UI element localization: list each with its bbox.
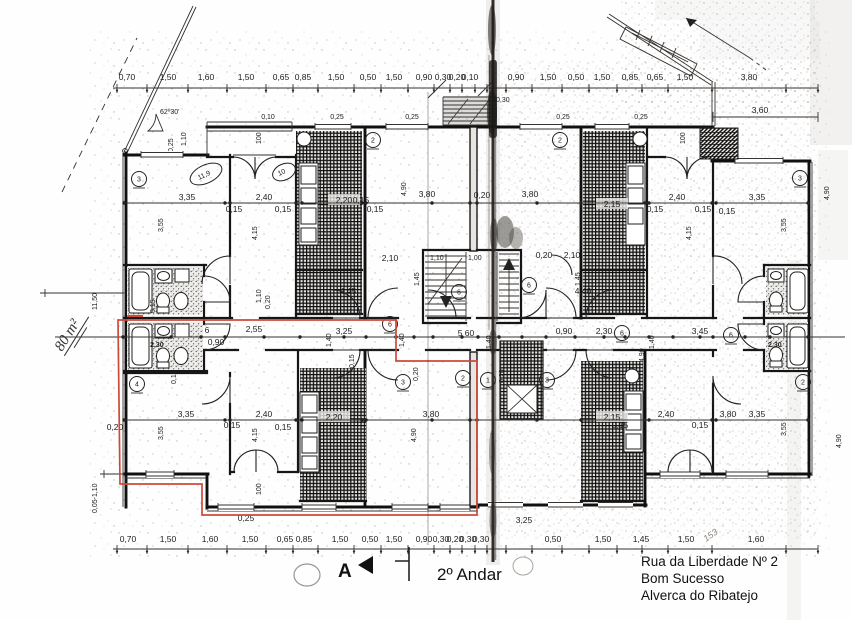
svg-text:1,50: 1,50 bbox=[386, 534, 403, 544]
svg-text:0,25: 0,25 bbox=[330, 114, 344, 121]
svg-text:3,80: 3,80 bbox=[741, 72, 758, 82]
svg-text:2,30: 2,30 bbox=[768, 342, 782, 349]
svg-text:3,25: 3,25 bbox=[336, 326, 353, 336]
svg-text:0,15: 0,15 bbox=[647, 204, 664, 214]
svg-text:0,90: 0,90 bbox=[508, 72, 525, 82]
svg-text:0,70: 0,70 bbox=[119, 72, 136, 82]
svg-text:1,50: 1,50 bbox=[595, 534, 612, 544]
svg-text:0,15: 0,15 bbox=[695, 204, 712, 214]
svg-text:100: 100 bbox=[256, 132, 263, 144]
svg-text:0,30: 0,30 bbox=[496, 97, 510, 104]
svg-text:1,50: 1,50 bbox=[678, 534, 695, 544]
svg-text:0,10: 0,10 bbox=[261, 114, 275, 121]
svg-text:6: 6 bbox=[620, 331, 624, 338]
svg-text:1,45: 1,45 bbox=[633, 534, 650, 544]
svg-text:6: 6 bbox=[729, 333, 733, 340]
svg-text:2,30: 2,30 bbox=[596, 326, 613, 336]
svg-text:0,85: 0,85 bbox=[296, 534, 313, 544]
svg-text:11,50: 11,50 bbox=[92, 293, 99, 310]
svg-text:2,20: 2,20 bbox=[336, 195, 353, 205]
svg-text:1,50: 1,50 bbox=[328, 72, 345, 82]
svg-text:1,50: 1,50 bbox=[594, 72, 611, 82]
svg-text:0,65: 0,65 bbox=[273, 72, 290, 82]
svg-text:0,25: 0,25 bbox=[556, 114, 570, 121]
svg-text:6: 6 bbox=[205, 325, 210, 335]
svg-text:0,85: 0,85 bbox=[295, 72, 312, 82]
svg-text:2,30: 2,30 bbox=[150, 342, 164, 349]
svg-text:2: 2 bbox=[558, 138, 562, 145]
svg-text:100: 100 bbox=[256, 483, 263, 495]
svg-text:Alverca do Ribatejo: Alverca do Ribatejo bbox=[641, 588, 758, 603]
svg-text:1: 1 bbox=[486, 378, 490, 385]
svg-text:1,50: 1,50 bbox=[540, 72, 557, 82]
svg-text:3,80: 3,80 bbox=[522, 189, 539, 199]
svg-text:0,15: 0,15 bbox=[171, 370, 178, 384]
svg-text:0,50: 0,50 bbox=[360, 72, 377, 82]
svg-text:1,45: 1,45 bbox=[414, 272, 421, 286]
svg-text:Rua da Liberdade Nº 2: Rua da Liberdade Nº 2 bbox=[641, 554, 778, 569]
svg-text:0,85: 0,85 bbox=[622, 72, 639, 82]
svg-text:3,60: 3,60 bbox=[752, 105, 769, 115]
svg-text:0,90: 0,90 bbox=[416, 72, 433, 82]
svg-text:2,40: 2,40 bbox=[256, 192, 273, 202]
svg-text:4,15: 4,15 bbox=[686, 226, 693, 240]
svg-text:0,15: 0,15 bbox=[612, 420, 629, 430]
svg-text:1,45: 1,45 bbox=[575, 272, 582, 286]
svg-text:2,15: 2,15 bbox=[604, 199, 621, 209]
svg-text:3,35: 3,35 bbox=[179, 192, 196, 202]
svg-text:0,65: 0,65 bbox=[647, 72, 664, 82]
svg-text:4,15: 4,15 bbox=[252, 428, 259, 442]
svg-text:0,20: 0,20 bbox=[474, 190, 491, 200]
svg-text:1,40: 1,40 bbox=[399, 333, 406, 347]
svg-text:100: 100 bbox=[680, 132, 687, 144]
svg-text:2,10: 2,10 bbox=[564, 250, 581, 260]
svg-text:2,55: 2,55 bbox=[246, 324, 263, 334]
svg-text:3,35: 3,35 bbox=[178, 409, 195, 419]
svg-text:4,90: 4,90 bbox=[401, 182, 408, 196]
svg-text:2,40: 2,40 bbox=[658, 409, 675, 419]
svg-text:1,50: 1,50 bbox=[160, 534, 177, 544]
svg-text:1,00: 1,00 bbox=[468, 255, 482, 262]
svg-text:0,15: 0,15 bbox=[226, 204, 243, 214]
svg-text:4,45: 4,45 bbox=[340, 286, 357, 296]
svg-text:3: 3 bbox=[798, 176, 802, 183]
svg-text:1,10: 1,10 bbox=[181, 132, 188, 146]
svg-text:1,10: 1,10 bbox=[256, 289, 263, 303]
svg-text:5 60: 5 60 bbox=[458, 328, 475, 338]
svg-text:1,60: 1,60 bbox=[202, 534, 219, 544]
svg-text:1,40: 1,40 bbox=[649, 335, 656, 349]
svg-text:0,90: 0,90 bbox=[416, 534, 433, 544]
svg-text:0,15: 0,15 bbox=[692, 420, 709, 430]
svg-text:0,20: 0,20 bbox=[499, 369, 506, 383]
svg-text:0,20: 0,20 bbox=[107, 422, 124, 432]
svg-text:1,10: 1,10 bbox=[430, 255, 444, 262]
svg-text:3,80: 3,80 bbox=[423, 409, 440, 419]
svg-text:3,35: 3,35 bbox=[749, 409, 766, 419]
svg-text:62º30': 62º30' bbox=[160, 109, 179, 116]
svg-text:0,65: 0,65 bbox=[277, 534, 294, 544]
svg-text:1,60: 1,60 bbox=[198, 72, 215, 82]
svg-text:4,40: 4,40 bbox=[575, 286, 592, 296]
svg-text:0,50: 0,50 bbox=[568, 72, 585, 82]
svg-text:3,25: 3,25 bbox=[516, 515, 533, 525]
svg-text:3,55: 3,55 bbox=[781, 422, 788, 436]
svg-text:2: 2 bbox=[461, 376, 465, 383]
svg-text:0,20: 0,20 bbox=[265, 295, 272, 309]
svg-text:4,90: 4,90 bbox=[411, 428, 418, 442]
svg-text:0,20: 0,20 bbox=[536, 250, 553, 260]
svg-text:0,30: 0,30 bbox=[473, 534, 490, 544]
svg-text:0,50: 0,50 bbox=[362, 534, 379, 544]
svg-text:1,50: 1,50 bbox=[160, 72, 177, 82]
svg-text:6: 6 bbox=[457, 290, 461, 297]
svg-text:3,80: 3,80 bbox=[720, 409, 737, 419]
svg-text:0,90: 0,90 bbox=[208, 337, 225, 347]
svg-text:0,15: 0,15 bbox=[353, 195, 370, 205]
svg-text:0,10: 0,10 bbox=[462, 72, 479, 82]
svg-text:2º Andar: 2º Andar bbox=[437, 565, 502, 584]
svg-text:2,10: 2,10 bbox=[382, 253, 399, 263]
svg-text:2,20: 2,20 bbox=[326, 412, 343, 422]
svg-text:3,55: 3,55 bbox=[158, 426, 165, 440]
svg-text:1,50: 1,50 bbox=[242, 534, 259, 544]
svg-text:0,70: 0,70 bbox=[120, 534, 137, 544]
svg-text:1,60: 1,60 bbox=[748, 534, 765, 544]
svg-text:2,40: 2,40 bbox=[256, 409, 273, 419]
svg-text:Bom Sucesso: Bom Sucesso bbox=[641, 571, 724, 586]
svg-text:0,15: 0,15 bbox=[719, 206, 736, 216]
svg-text:A: A bbox=[338, 561, 352, 582]
svg-text:0,15: 0,15 bbox=[224, 420, 241, 430]
svg-text:0,15: 0,15 bbox=[367, 204, 384, 214]
svg-text:1,50: 1,50 bbox=[238, 72, 255, 82]
svg-text:0,25: 0,25 bbox=[168, 138, 175, 152]
svg-text:4,90: 4,90 bbox=[836, 434, 843, 448]
svg-text:0,25: 0,25 bbox=[405, 114, 419, 121]
svg-text:1,40: 1,40 bbox=[326, 333, 333, 347]
svg-text:1,50: 1,50 bbox=[386, 72, 403, 82]
svg-text:3,55: 3,55 bbox=[781, 218, 788, 232]
svg-text:0,15: 0,15 bbox=[275, 422, 292, 432]
svg-text:4,90: 4,90 bbox=[639, 348, 646, 362]
svg-text:4: 4 bbox=[135, 382, 139, 389]
svg-text:1,50: 1,50 bbox=[677, 72, 694, 82]
svg-text:3,55: 3,55 bbox=[158, 218, 165, 232]
svg-text:0,50: 0,50 bbox=[545, 534, 562, 544]
svg-text:6: 6 bbox=[527, 283, 531, 290]
svg-text:0,05-1,10: 0,05-1,10 bbox=[92, 483, 99, 513]
svg-text:6: 6 bbox=[388, 322, 392, 329]
svg-text:3,45: 3,45 bbox=[692, 326, 709, 336]
svg-text:0,90: 0,90 bbox=[556, 326, 573, 336]
svg-text:0,25: 0,25 bbox=[634, 114, 648, 121]
svg-text:4,90: 4,90 bbox=[824, 186, 831, 200]
svg-text:3,80: 3,80 bbox=[419, 189, 436, 199]
svg-text:3: 3 bbox=[401, 380, 405, 387]
svg-text:0,15: 0,15 bbox=[150, 299, 157, 313]
svg-text:3: 3 bbox=[545, 378, 549, 385]
svg-text:2: 2 bbox=[801, 380, 805, 387]
svg-text:0,15: 0,15 bbox=[349, 354, 356, 368]
svg-text:4,15: 4,15 bbox=[252, 226, 259, 240]
svg-text:1,50: 1,50 bbox=[332, 534, 349, 544]
svg-text:3,35: 3,35 bbox=[749, 192, 766, 202]
svg-text:2,40: 2,40 bbox=[669, 192, 686, 202]
svg-text:0,15: 0,15 bbox=[275, 204, 292, 214]
svg-text:3: 3 bbox=[137, 177, 141, 184]
svg-text:2: 2 bbox=[371, 138, 375, 145]
svg-text:0,20: 0,20 bbox=[413, 367, 420, 381]
